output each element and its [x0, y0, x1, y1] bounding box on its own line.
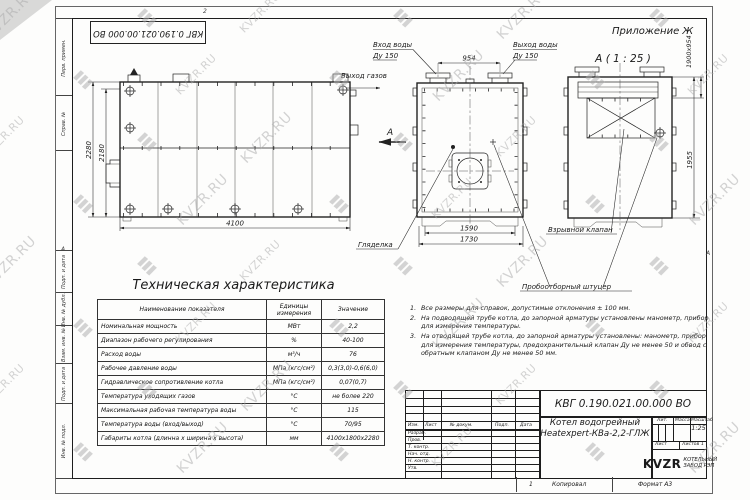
table-cell: Максимальная рабочая температура воды [98, 404, 267, 418]
view-a-title: А ( 1 : 25 ) [594, 53, 651, 65]
top-stamp-doc-number: КВГ 0.190.021.00.000 ВО [93, 28, 203, 38]
tb-row-nachotd: Нач. отд. [408, 452, 430, 457]
dim-1955: 1955 [686, 151, 694, 169]
tb-row-razrab: Разраб. [408, 431, 426, 436]
scan-corner-shade [0, 0, 52, 40]
watermark-logo-icon [648, 6, 670, 28]
peephole-label: Гляделка [358, 241, 393, 249]
table-cell: МПа (кгс/см²) [267, 376, 322, 390]
table-row: Номинальная мощностьМВт2,2 [98, 320, 385, 334]
table-row: Гидравлическое сопротивление котлаМПа (к… [98, 376, 385, 390]
table-row: Температура уходящих газов°Сне более 220 [98, 390, 385, 404]
table-cell: 2,2 [322, 320, 385, 334]
tech-characteristics-table: Наименование показателя Единицы измерени… [97, 299, 385, 446]
table-cell: Гидравлическое сопротивление котла [98, 376, 267, 390]
watermark-text: KVZR.RU [0, 361, 27, 407]
table-cell: м³/ч [267, 348, 322, 362]
footer-copied: Копировал [552, 481, 586, 488]
table-row: Температура воды (вход/выход)°С70/95 [98, 418, 385, 432]
tb-col-podp: Подп. [495, 423, 509, 428]
table-row: Расход водым³/ч76 [98, 348, 385, 362]
table-cell: Расход воды [98, 348, 267, 362]
table-cell: Диапазон рабочего регулирования [98, 334, 267, 348]
top-stamp-box: КВГ 0.190.021.00.000 ВО [90, 21, 206, 44]
tb-col-list: Лист [425, 423, 437, 428]
zone-marker-right: А [706, 250, 710, 257]
dim-1590: 1590 [460, 225, 478, 233]
watermark-logo-icon [72, 316, 94, 338]
tb-row-prov: Пров. [408, 438, 421, 443]
tb-company-name: КОТЕЛЬНЫЙ ЗАВОД РЭП [683, 458, 717, 470]
frame-cell-inv-dubl: Инв. № дубл. [56, 292, 72, 326]
side-flange [106, 160, 120, 187]
tech-table-title: Техническая характеристика [97, 278, 370, 293]
table-cell: 115 [322, 404, 385, 418]
water-outlet-du: Ду 150 [512, 52, 539, 60]
table-cell: Рабочее давление воды [98, 362, 267, 376]
frame-cell-inv-podl: Инв. № подл. [56, 403, 72, 479]
side-view: 2280 2180 4100 [85, 68, 358, 231]
tb-row-utv: Утв. [408, 466, 418, 471]
table-header-row: Наименование показателя Единицы измерени… [98, 300, 385, 320]
explosion-valve-panel [587, 98, 655, 138]
boiler-views-drawing: 2280 2180 4100 954 Вход воды Ду 150 Выхо… [70, 30, 710, 302]
tb-product-line2: Heatexpert-КВа-2,2-ГЛЖ [539, 429, 651, 440]
note-item: Все размеры для справок, допустимые откл… [421, 304, 719, 313]
tb-product-name: Котел водогрейный Heatexpert-КВа-2,2-ГЛЖ [539, 418, 651, 440]
table-cell: Габариты котла (длинна х ширина х высота… [98, 432, 267, 446]
watermark-text: KVZR.RU [0, 233, 40, 291]
gas-outlet-label: Выход газов [341, 72, 387, 80]
table-row: Диапазон рабочего регулирования%40-100 [98, 334, 385, 348]
table-row: Максимальная рабочая температура воды°С1… [98, 404, 385, 418]
frame-cell-vzam-inv: Взам. инв. № [56, 325, 72, 364]
tb-sheets-value: 1 [701, 442, 704, 447]
tb-scale-value: 1:25 [690, 424, 707, 432]
table-cell: 70/95 [322, 418, 385, 432]
frame-cell-empty [56, 150, 72, 251]
dim-2180: 2180 [98, 144, 106, 162]
zone-marker-top: 2 [203, 8, 207, 15]
water-outlet-label: Выход воды [513, 41, 558, 49]
frame-cell-podp-data-2: Подп. и дата [56, 363, 72, 404]
dim-1900x954: 1900х954 [685, 35, 693, 68]
table-cell: не более 220 [322, 390, 385, 404]
watermark-logo-icon [72, 440, 94, 462]
note-item: На подводящей трубе котла, до запорной а… [421, 314, 719, 331]
table-cell: °С [267, 404, 322, 418]
sampling-point [490, 139, 496, 145]
dim-4100: 4100 [226, 220, 244, 228]
table-cell: 76 [322, 348, 385, 362]
lifting-lug-marker [130, 68, 138, 75]
table-cell: °С [267, 390, 322, 404]
table-row: Габариты котла (длинна х ширина х высота… [98, 432, 385, 446]
water-inlet-du: Ду 150 [372, 52, 399, 60]
table-cell: °С [267, 418, 322, 432]
table-cell: Температура воды (вход/выход) [98, 418, 267, 432]
table-cell: МПа (кгс/см²) [267, 362, 322, 376]
frame-cell-podp-data-1: Подп. и дата [56, 250, 72, 293]
table-cell: 4100х1800х2280 [322, 432, 385, 446]
watermark-logo-icon [392, 6, 414, 28]
col-header-units: Единицы измерения [267, 300, 322, 320]
zone-marker-left: А [61, 246, 65, 253]
footer-format: Формат А3 [638, 481, 672, 488]
section-a-label: А [386, 128, 393, 138]
tb-product-line1: Котел водогрейный [539, 418, 651, 429]
tb-sheets-label: Листов [682, 442, 699, 447]
front-view: 954 Вход воды Ду 150 Выход воды Ду 150 В… [341, 41, 657, 291]
tb-col-izm: Изм. [408, 423, 419, 428]
tb-lit-label: Лит. [657, 418, 668, 423]
table-cell: мм [267, 432, 322, 446]
dim-1730: 1730 [460, 236, 478, 244]
notes-list: Все размеры для справок, допустимые откл… [407, 304, 719, 359]
tb-row-nkontr: Н. контр. [408, 459, 430, 464]
tb-col-dokum: № докум. [450, 423, 473, 428]
dim-2280: 2280 [85, 141, 93, 159]
title-block: Изм. Лист № докум. Подп. Дата Разраб. Пр… [405, 390, 707, 478]
frame-cell-sprav-no: Справ. № [56, 95, 72, 151]
table-cell: Температура уходящих газов [98, 390, 267, 404]
tb-scale-label: Масштаб [691, 418, 713, 423]
water-inlet-label: Вход воды [373, 41, 413, 49]
tb-brand-text: KVZR [643, 457, 682, 471]
table-cell: % [267, 334, 322, 348]
sampling-label: Пробоотборный штуцер [522, 283, 612, 291]
table-cell: 0,07(0,7) [322, 376, 385, 390]
note-item: На отводящей трубе котла, до запорной ар… [421, 332, 719, 358]
col-header-name: Наименование показателя [98, 300, 267, 320]
peephole-point [451, 145, 455, 149]
drawing-sheet: { "frame": { "stamp_top": "КВГ 0.190.021… [0, 0, 750, 500]
watermark-text: KVZR.RU [0, 113, 27, 159]
appendix-label: Приложение Ж [612, 26, 693, 37]
col-header-value: Значение [322, 300, 385, 320]
table-cell: 0,3(3,0)-0,6(6,0) [322, 362, 385, 376]
table-cell: Номинальная мощность [98, 320, 267, 334]
table-cell: 40-100 [322, 334, 385, 348]
table-cell: МВт [267, 320, 322, 334]
tb-sheet-label: Лист [655, 442, 667, 447]
dim-954: 954 [462, 55, 475, 63]
tb-mass-label: Масса [675, 418, 690, 423]
footer-zone: 1 [529, 481, 533, 488]
tb-company-logo: KVZR КОТЕЛЬНЫЙ ЗАВОД РЭП [651, 449, 707, 478]
tb-doc-number: КВГ 0.190.021.00.000 ВО [539, 391, 707, 416]
table-row: Рабочее давление водыМПа (кгс/см²)0,3(3,… [98, 362, 385, 376]
tb-col-data: Дата [520, 423, 532, 428]
tb-row-tkontr: Т. контр. [408, 445, 429, 450]
frame-cell-perv-primen: Перв. примен. [56, 18, 72, 96]
